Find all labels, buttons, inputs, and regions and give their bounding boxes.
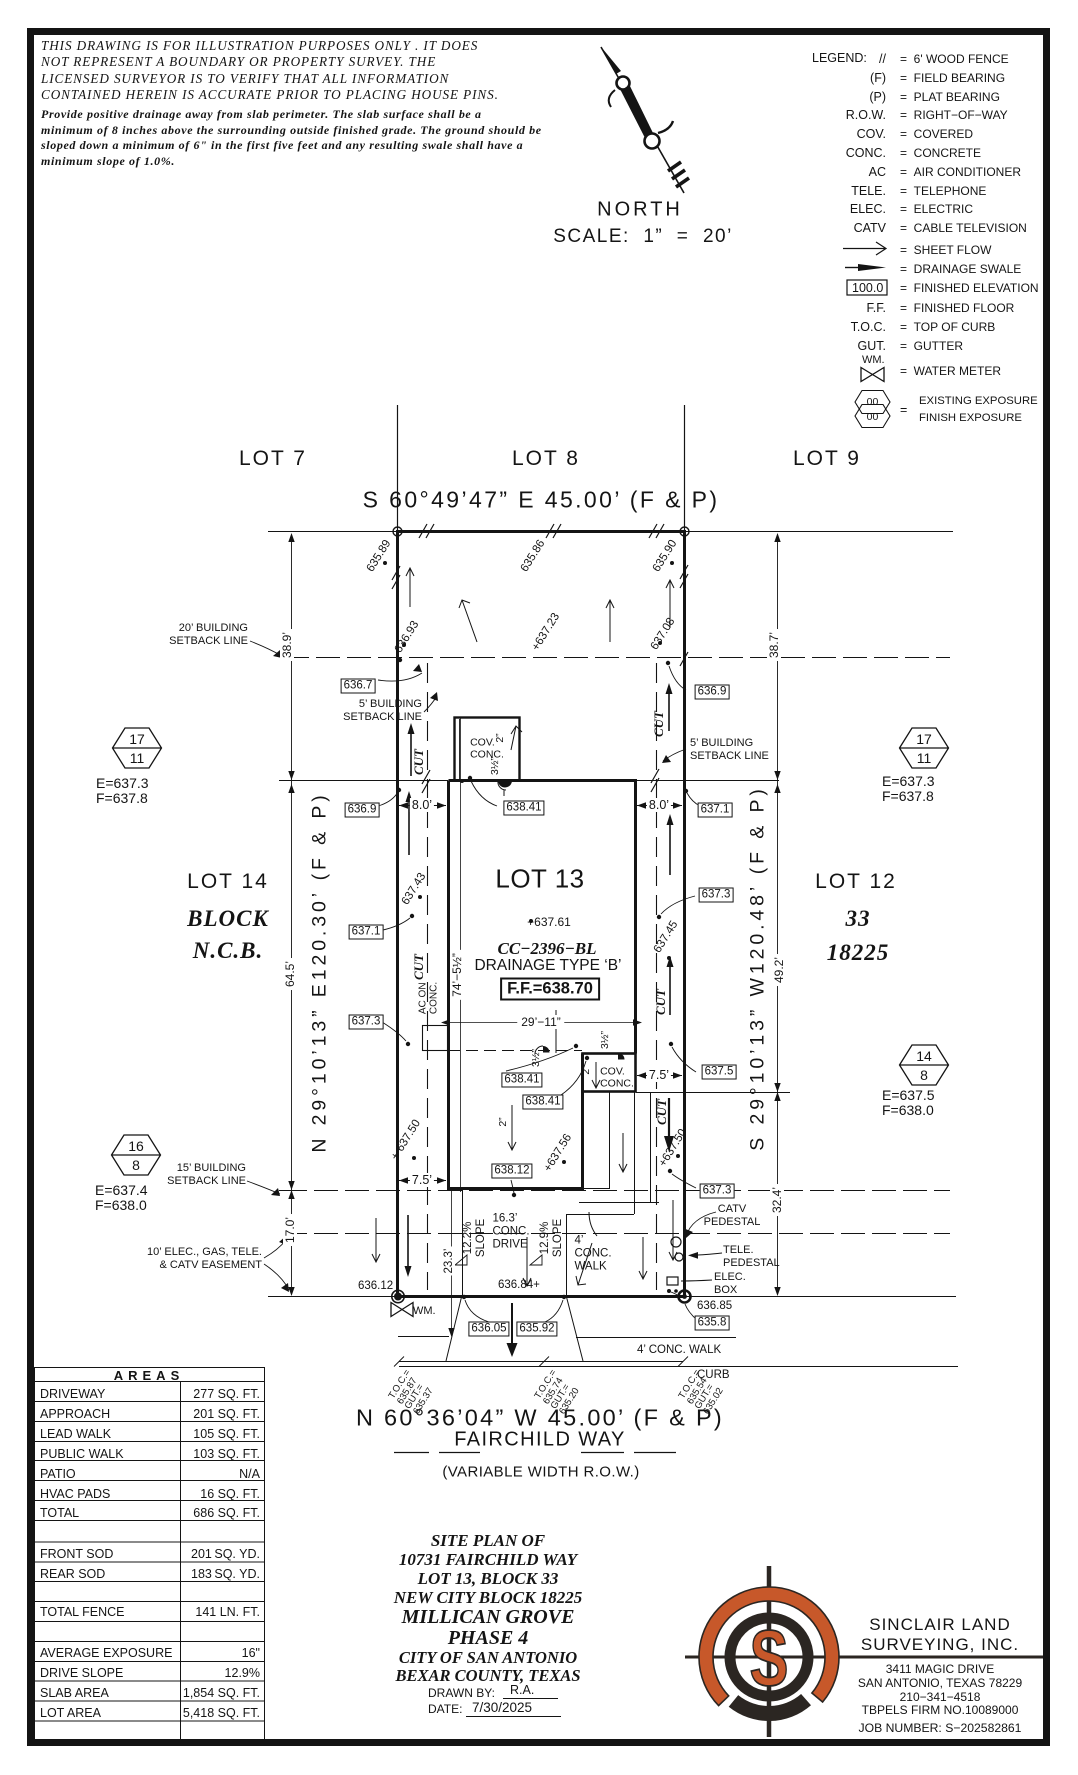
svg-text:S: S	[750, 1613, 789, 1702]
